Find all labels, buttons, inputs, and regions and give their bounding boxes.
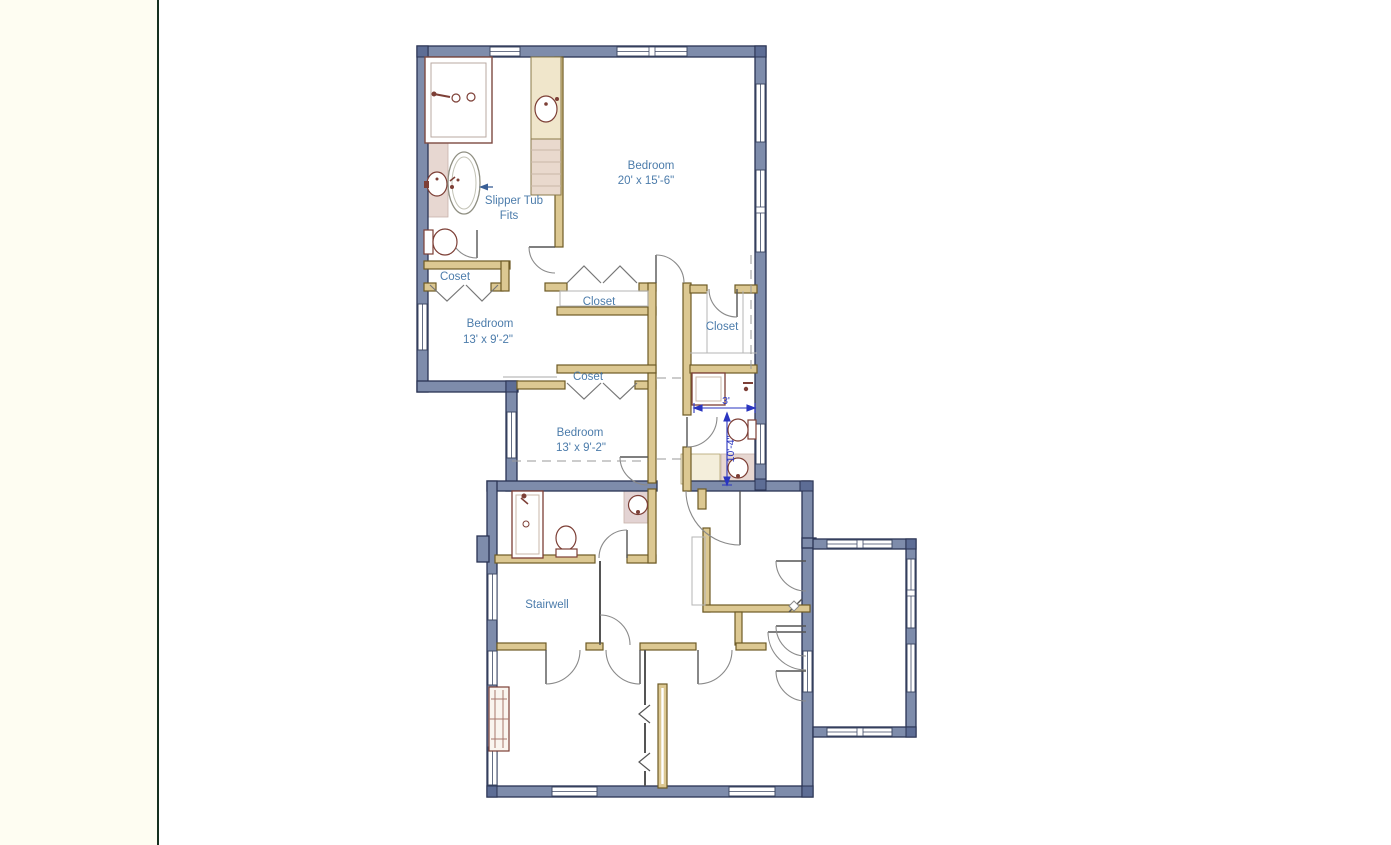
fireplace-icon bbox=[489, 687, 509, 751]
label-stairwell: Stairwell bbox=[525, 599, 568, 611]
label-slipper-tub-2: Fits bbox=[500, 210, 519, 222]
label-closet-east: Closet bbox=[706, 321, 739, 333]
shower-icon bbox=[425, 57, 492, 143]
label-closet-nw: Coset bbox=[440, 271, 471, 283]
label-dim-width: 3' bbox=[722, 395, 730, 407]
label-bedroom-master-dims: 20' x 15'-6" bbox=[618, 175, 674, 187]
toilet-icon bbox=[556, 526, 577, 557]
label-bedroom-center-dims: 13' x 9'-2" bbox=[556, 442, 606, 454]
label-bedroom-master: Bedroom bbox=[628, 160, 675, 172]
application-canvas[interactable]: Bedroom 20' x 15'-6" Bedroom 13' x 9'-2"… bbox=[0, 0, 1391, 845]
label-slipper-tub-1: Slipper Tub bbox=[485, 195, 543, 207]
label-bedroom-west: Bedroom bbox=[467, 318, 514, 330]
label-closet-mid: Coset bbox=[573, 371, 604, 383]
label-closet-center: Closet bbox=[583, 296, 616, 308]
label-bedroom-west-dims: 13' x 9'-2" bbox=[463, 334, 513, 346]
floorplan-canvas[interactable]: Bedroom 20' x 15'-6" Bedroom 13' x 9'-2"… bbox=[0, 0, 1391, 845]
tub-icon bbox=[512, 491, 543, 558]
leader-arrow bbox=[479, 184, 493, 191]
vanity-counter bbox=[531, 57, 561, 195]
vanity-sink-icon bbox=[535, 96, 557, 122]
closet-bifold-chevrons bbox=[430, 266, 637, 399]
slipper-tub-icon bbox=[448, 152, 480, 214]
sink-icon bbox=[629, 496, 648, 515]
toilet-icon bbox=[424, 229, 457, 255]
label-bedroom-center: Bedroom bbox=[557, 427, 604, 439]
label-dim-length: 10'-4" bbox=[725, 435, 737, 462]
